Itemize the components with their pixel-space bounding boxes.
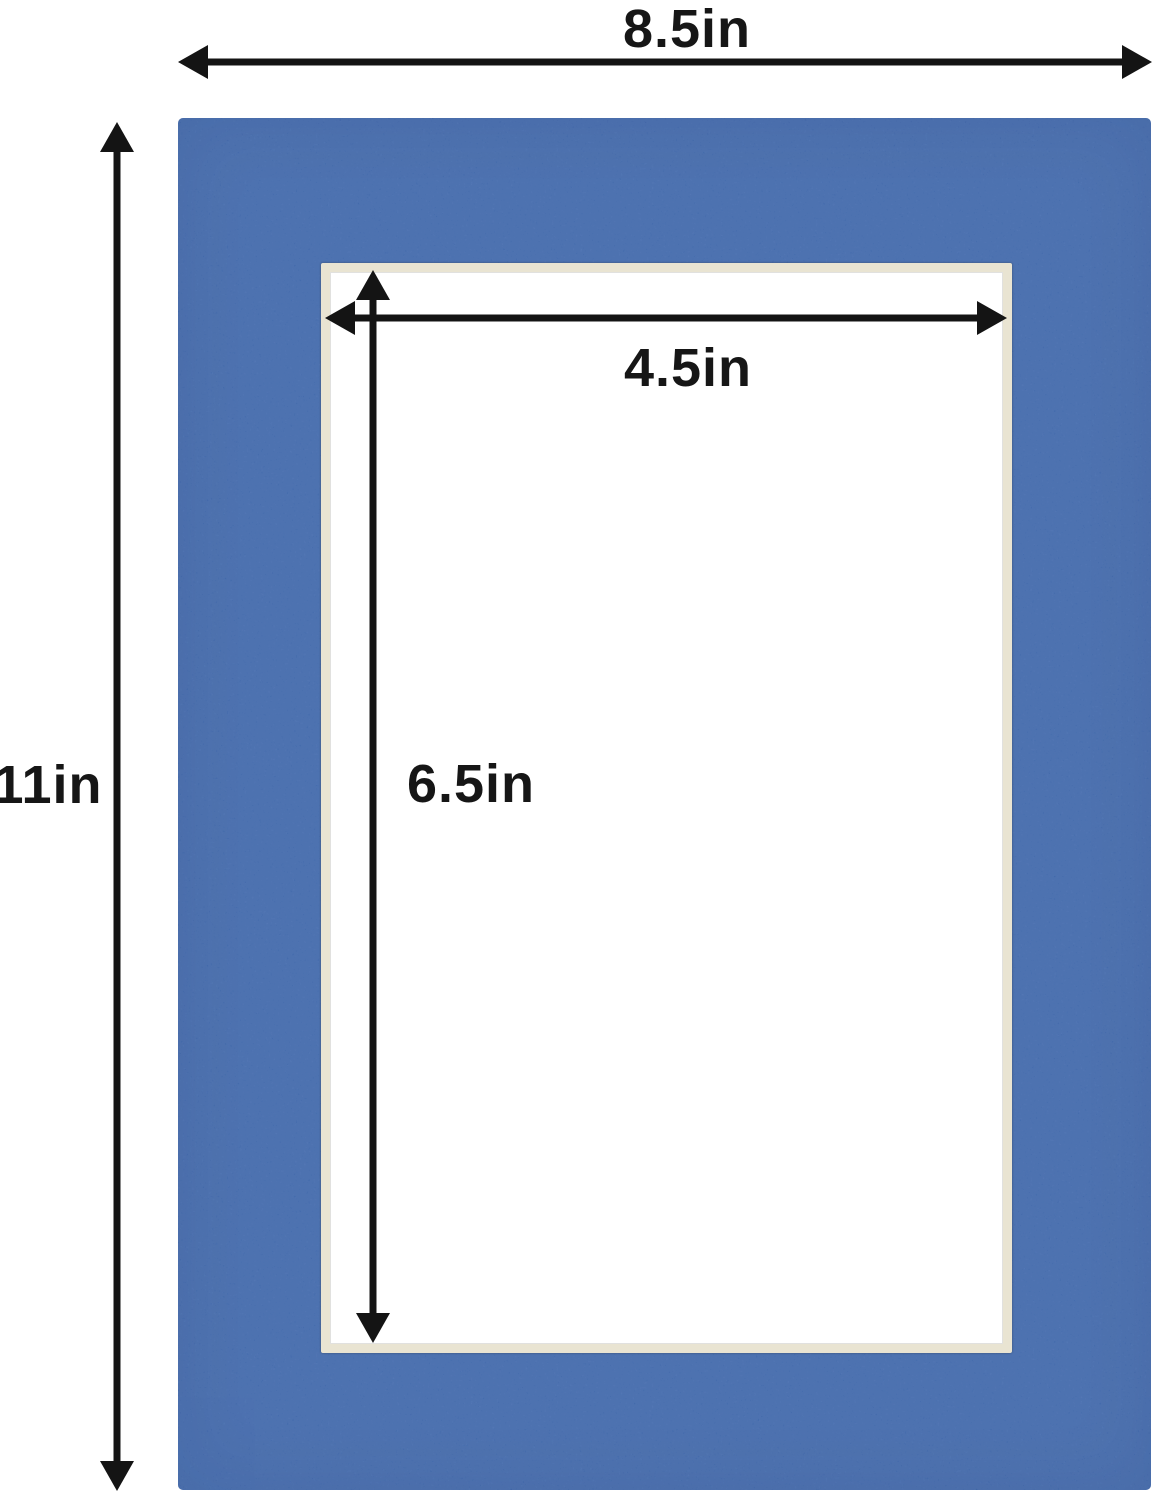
outer-height-arrow [100, 122, 134, 1491]
mat-board-dimension-diagram: 8.5in 11in 4.5in 6.5in [0, 0, 1166, 1500]
outer-width-label: 8.5in [623, 2, 751, 56]
arrowhead-right-icon [1122, 45, 1152, 79]
arrowhead-up-icon [100, 122, 134, 152]
inner-height-label: 6.5in [407, 757, 535, 811]
mat-board [178, 118, 1151, 1490]
inner-width-label: 4.5in [624, 341, 752, 395]
outer-height-label: 11in [0, 758, 103, 812]
arrowhead-left-icon [178, 45, 208, 79]
arrowhead-down-icon [100, 1461, 134, 1491]
